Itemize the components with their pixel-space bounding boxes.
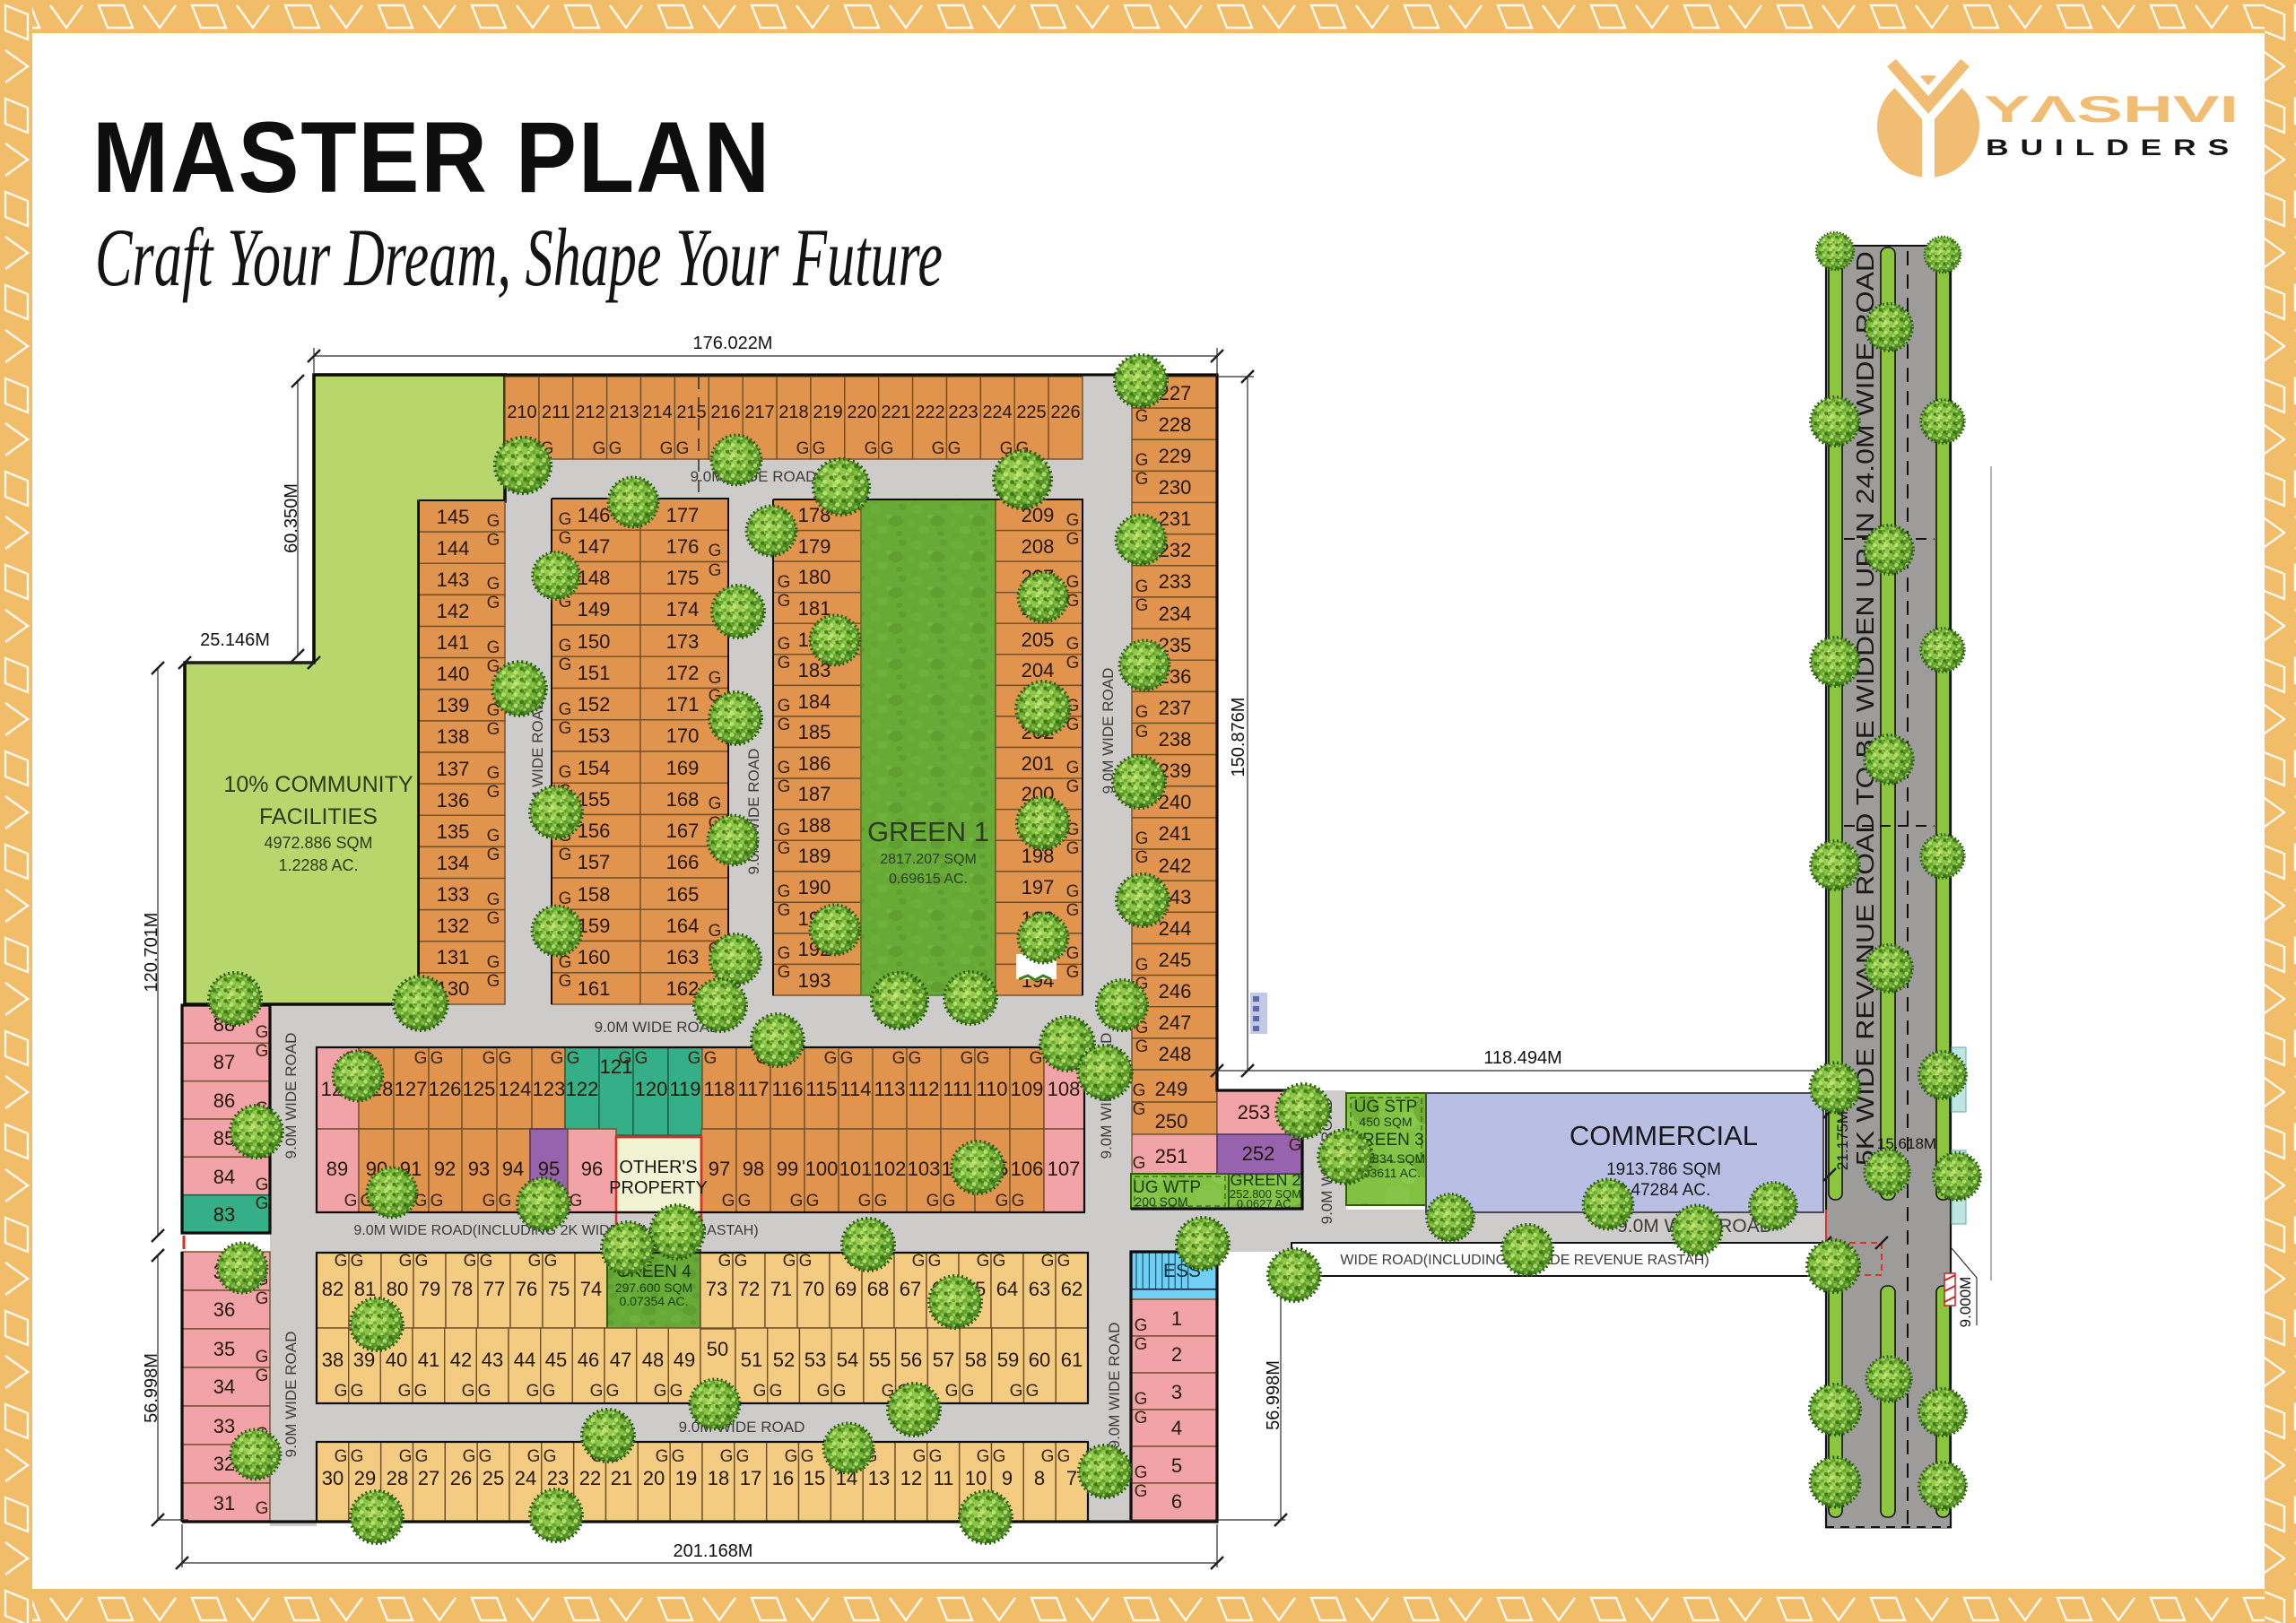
- svg-text:40: 40: [386, 1349, 407, 1371]
- svg-text:17: 17: [740, 1467, 761, 1489]
- svg-text:43: 43: [482, 1349, 503, 1371]
- svg-text:217: 217: [744, 403, 774, 422]
- svg-text:57: 57: [933, 1349, 954, 1371]
- svg-text:UG STP: UG STP: [1354, 1098, 1418, 1116]
- svg-text:200 SQM: 200 SQM: [1135, 1194, 1187, 1209]
- svg-text:98: 98: [743, 1158, 764, 1180]
- svg-text:139: 139: [437, 694, 470, 716]
- svg-text:G: G: [1041, 1447, 1055, 1466]
- svg-text:27: 27: [418, 1467, 439, 1489]
- svg-text:87: 87: [213, 1051, 235, 1073]
- svg-text:G: G: [256, 1367, 269, 1385]
- svg-text:112: 112: [908, 1078, 939, 1100]
- svg-text:58: 58: [965, 1349, 987, 1371]
- svg-text:G: G: [1135, 1335, 1148, 1354]
- svg-text:47: 47: [610, 1349, 631, 1371]
- svg-text:G: G: [785, 1447, 798, 1466]
- svg-text:181: 181: [798, 597, 831, 620]
- svg-text:G: G: [881, 439, 894, 458]
- svg-text:126: 126: [429, 1078, 462, 1100]
- svg-text:G: G: [660, 439, 674, 458]
- svg-text:41: 41: [418, 1349, 439, 1371]
- svg-text:G: G: [606, 1382, 620, 1401]
- svg-text:G: G: [1133, 1081, 1146, 1100]
- svg-text:131: 131: [437, 946, 470, 968]
- svg-text:108: 108: [1048, 1078, 1081, 1100]
- svg-text:221: 221: [881, 403, 910, 422]
- svg-text:G: G: [1066, 882, 1080, 901]
- svg-text:G: G: [256, 1289, 269, 1308]
- svg-text:G: G: [430, 1049, 444, 1068]
- svg-text:174: 174: [666, 598, 700, 621]
- svg-text:G: G: [796, 439, 810, 458]
- svg-text:109: 109: [1011, 1078, 1044, 1100]
- svg-text:G: G: [1135, 723, 1149, 742]
- svg-text:252: 252: [1242, 1142, 1275, 1165]
- svg-text:G: G: [1066, 901, 1080, 920]
- svg-text:G: G: [1012, 1192, 1025, 1211]
- svg-text:141: 141: [437, 631, 470, 654]
- svg-text:G: G: [778, 882, 791, 901]
- svg-text:G: G: [479, 1447, 492, 1466]
- svg-text:G: G: [961, 1049, 974, 1068]
- svg-text:167: 167: [666, 820, 700, 842]
- svg-text:169: 169: [666, 757, 700, 779]
- svg-text:G: G: [1135, 451, 1149, 470]
- svg-text:97: 97: [709, 1158, 730, 1180]
- svg-text:134: 134: [437, 852, 470, 874]
- svg-text:COMMERCIAL: COMMERCIAL: [1570, 1120, 1758, 1151]
- svg-text:G: G: [670, 1382, 683, 1401]
- svg-text:G: G: [778, 697, 791, 716]
- svg-text:MASTER PLAN: MASTER PLAN: [92, 101, 771, 213]
- svg-text:G: G: [778, 839, 791, 858]
- svg-text:62: 62: [1061, 1278, 1083, 1300]
- svg-text:G: G: [1135, 1316, 1148, 1335]
- svg-text:G: G: [487, 575, 500, 594]
- svg-text:G: G: [483, 1192, 496, 1211]
- svg-text:G: G: [1135, 703, 1149, 722]
- svg-text:2: 2: [1171, 1343, 1182, 1366]
- svg-text:64: 64: [996, 1278, 1018, 1300]
- svg-text:80: 80: [387, 1278, 408, 1300]
- svg-text:PROPERTY: PROPERTY: [609, 1178, 708, 1198]
- svg-text:146: 146: [578, 504, 611, 526]
- svg-text:75: 75: [548, 1278, 570, 1300]
- svg-text:G: G: [926, 1192, 940, 1211]
- svg-text:30: 30: [322, 1467, 344, 1489]
- svg-text:166: 166: [666, 851, 700, 873]
- svg-text:150.876M: 150.876M: [1229, 698, 1248, 777]
- svg-text:G: G: [709, 542, 722, 560]
- svg-text:G: G: [1030, 1049, 1043, 1068]
- svg-text:117: 117: [737, 1078, 769, 1100]
- svg-text:G: G: [912, 1252, 926, 1271]
- svg-text:190: 190: [798, 876, 831, 898]
- svg-text:G: G: [770, 1382, 783, 1401]
- svg-text:G: G: [858, 1192, 872, 1211]
- svg-text:G: G: [840, 1049, 854, 1068]
- svg-text:55: 55: [869, 1349, 891, 1371]
- svg-text:218: 218: [778, 403, 808, 422]
- svg-text:G: G: [1135, 848, 1149, 867]
- svg-text:249: 249: [1155, 1078, 1188, 1100]
- svg-text:G: G: [704, 1049, 717, 1068]
- svg-text:157: 157: [578, 851, 611, 873]
- svg-text:G: G: [1041, 1252, 1055, 1271]
- svg-text:56.998M: 56.998M: [1264, 1360, 1283, 1430]
- svg-text:52: 52: [773, 1349, 795, 1371]
- svg-text:59: 59: [997, 1349, 1019, 1371]
- svg-text:7: 7: [1066, 1467, 1077, 1489]
- svg-text:G: G: [559, 529, 572, 548]
- svg-text:G: G: [799, 1252, 813, 1271]
- svg-text:G: G: [1057, 1252, 1071, 1271]
- svg-text:224: 224: [982, 403, 1012, 422]
- svg-text:G: G: [1010, 1382, 1023, 1401]
- svg-text:93: 93: [468, 1158, 490, 1180]
- svg-text:5K WIDE REVANUE ROAD TO BE WID: 5K WIDE REVANUE ROAD TO BE WIDDEN UP IN …: [1851, 251, 1879, 1166]
- svg-text:G: G: [738, 1192, 752, 1211]
- svg-text:71: 71: [770, 1278, 792, 1300]
- svg-text:G: G: [778, 901, 791, 920]
- svg-text:G: G: [932, 439, 945, 458]
- svg-text:78: 78: [451, 1278, 473, 1300]
- svg-text:170: 170: [666, 725, 700, 747]
- svg-text:22: 22: [579, 1467, 601, 1489]
- svg-text:33: 33: [213, 1415, 235, 1437]
- svg-text:72: 72: [738, 1278, 760, 1300]
- svg-text:21.175M: 21.175M: [1834, 1111, 1851, 1170]
- svg-text:G: G: [487, 783, 500, 802]
- svg-text:G: G: [778, 777, 791, 796]
- svg-text:G: G: [806, 1192, 820, 1211]
- svg-text:212: 212: [575, 403, 604, 422]
- svg-text:158: 158: [578, 883, 611, 906]
- svg-text:216: 216: [710, 403, 740, 422]
- svg-text:G: G: [945, 1382, 959, 1401]
- svg-text:84: 84: [213, 1166, 235, 1188]
- svg-text:G: G: [414, 1382, 428, 1401]
- svg-text:136: 136: [437, 789, 470, 811]
- svg-text:0.07354 AC.: 0.07354 AC.: [619, 1294, 688, 1308]
- svg-text:230: 230: [1159, 476, 1192, 499]
- svg-text:110: 110: [976, 1078, 1007, 1100]
- svg-text:204: 204: [1022, 659, 1055, 681]
- svg-text:36: 36: [213, 1298, 235, 1321]
- svg-text:159: 159: [578, 915, 611, 937]
- svg-text:G: G: [778, 759, 791, 777]
- svg-text:173: 173: [666, 630, 700, 653]
- svg-text:99: 99: [777, 1158, 798, 1180]
- svg-text:18: 18: [708, 1467, 729, 1489]
- svg-text:G: G: [977, 1252, 990, 1271]
- svg-text:135: 135: [437, 820, 470, 843]
- svg-text:176.022M: 176.022M: [693, 334, 773, 353]
- svg-text:151: 151: [578, 662, 611, 684]
- svg-text:YΛSHVI: YΛSHVI: [1984, 88, 2239, 130]
- svg-text:251: 251: [1155, 1145, 1188, 1167]
- svg-text:G: G: [559, 510, 572, 529]
- svg-text:24: 24: [515, 1467, 536, 1489]
- svg-text:G: G: [865, 439, 878, 458]
- svg-text:G: G: [1066, 759, 1080, 777]
- svg-text:205: 205: [1022, 629, 1055, 651]
- svg-text:107: 107: [1048, 1158, 1081, 1180]
- svg-text:111: 111: [943, 1078, 972, 1100]
- svg-text:G: G: [778, 944, 791, 963]
- svg-text:163: 163: [666, 946, 700, 968]
- svg-text:G: G: [688, 1049, 701, 1068]
- svg-text:9.000M: 9.000M: [1957, 1277, 1974, 1328]
- svg-text:G: G: [559, 719, 572, 738]
- svg-text:G: G: [948, 439, 961, 458]
- svg-text:153: 153: [578, 725, 611, 747]
- svg-text:G: G: [335, 1382, 348, 1401]
- svg-text:175: 175: [666, 567, 700, 589]
- svg-text:G: G: [351, 1447, 364, 1466]
- svg-text:G: G: [335, 1447, 348, 1466]
- svg-text:10% COMMUNITY: 10% COMMUNITY: [223, 772, 413, 797]
- svg-text:144: 144: [437, 537, 470, 560]
- svg-text:165: 165: [666, 883, 700, 906]
- svg-text:1.2288 AC.: 1.2288 AC.: [278, 856, 358, 874]
- svg-text:6: 6: [1171, 1490, 1182, 1513]
- svg-text:50: 50: [707, 1338, 728, 1360]
- svg-text:116: 116: [771, 1078, 803, 1100]
- svg-text:G: G: [961, 1382, 975, 1401]
- svg-text:OTHER'S: OTHER'S: [619, 1158, 697, 1177]
- svg-text:102: 102: [874, 1158, 907, 1180]
- svg-text:G: G: [1066, 573, 1080, 592]
- svg-text:180: 180: [798, 566, 831, 588]
- svg-text:103: 103: [908, 1158, 941, 1180]
- svg-text:G: G: [801, 1447, 814, 1466]
- svg-text:119: 119: [669, 1078, 700, 1100]
- svg-text:35: 35: [213, 1338, 235, 1360]
- svg-text:63: 63: [1029, 1278, 1050, 1300]
- svg-text:G: G: [736, 1447, 750, 1466]
- svg-text:G: G: [499, 1192, 512, 1211]
- svg-text:G: G: [778, 635, 791, 654]
- svg-text:96: 96: [581, 1158, 603, 1180]
- svg-text:92: 92: [434, 1158, 456, 1180]
- svg-text:100: 100: [805, 1158, 839, 1180]
- svg-text:56: 56: [900, 1349, 922, 1371]
- svg-text:253: 253: [1238, 1101, 1271, 1124]
- svg-text:G: G: [977, 1447, 990, 1466]
- svg-text:143: 143: [437, 568, 470, 591]
- svg-text:61: 61: [1061, 1349, 1083, 1371]
- svg-text:15: 15: [804, 1467, 825, 1489]
- svg-text:G: G: [1135, 956, 1149, 975]
- svg-text:179: 179: [798, 535, 831, 558]
- svg-text:115: 115: [805, 1078, 837, 1100]
- svg-text:G: G: [778, 654, 791, 673]
- svg-text:82: 82: [322, 1278, 344, 1300]
- svg-text:G: G: [1135, 1409, 1148, 1428]
- svg-text:81: 81: [354, 1278, 376, 1300]
- svg-text:46: 46: [578, 1349, 599, 1371]
- svg-text:228: 228: [1159, 413, 1192, 436]
- svg-text:177: 177: [666, 504, 700, 526]
- svg-text:231: 231: [1159, 508, 1192, 530]
- svg-text:122: 122: [566, 1078, 599, 1100]
- svg-text:G: G: [487, 638, 500, 657]
- svg-text:G: G: [1066, 777, 1080, 796]
- svg-text:G: G: [1066, 839, 1080, 858]
- svg-text:G: G: [487, 909, 500, 928]
- svg-text:G: G: [1066, 511, 1080, 530]
- svg-text:G: G: [778, 592, 791, 611]
- svg-text:G: G: [1066, 963, 1080, 982]
- svg-text:G: G: [559, 763, 572, 782]
- svg-text:G: G: [559, 655, 572, 674]
- svg-text:140: 140: [437, 663, 470, 685]
- svg-text:G: G: [993, 1447, 1006, 1466]
- svg-text:26: 26: [450, 1467, 472, 1489]
- svg-text:67: 67: [900, 1278, 921, 1300]
- svg-text:73: 73: [706, 1278, 727, 1300]
- svg-text:G: G: [487, 512, 500, 531]
- svg-text:G: G: [943, 1192, 956, 1211]
- svg-text:Craft Your Dream, Shape Your F: Craft Your Dream, Shape Your Future: [95, 212, 943, 303]
- svg-text:211: 211: [542, 403, 570, 422]
- svg-text:220: 220: [847, 403, 876, 422]
- svg-text:89: 89: [326, 1158, 348, 1180]
- svg-text:5: 5: [1171, 1454, 1182, 1477]
- svg-text:68: 68: [867, 1278, 889, 1300]
- svg-text:184: 184: [798, 690, 831, 713]
- svg-text:G: G: [351, 1252, 364, 1271]
- svg-text:G: G: [929, 1447, 943, 1466]
- svg-text:G: G: [462, 1382, 475, 1401]
- svg-text:G: G: [256, 1194, 269, 1213]
- svg-text:152: 152: [578, 693, 611, 716]
- svg-text:118.494M: 118.494M: [1483, 1048, 1561, 1068]
- svg-text:G: G: [993, 1252, 1006, 1271]
- svg-text:137: 137: [437, 758, 470, 780]
- svg-text:G: G: [1135, 407, 1149, 426]
- svg-text:74: 74: [580, 1278, 602, 1300]
- svg-text:12: 12: [900, 1467, 922, 1489]
- svg-text:G: G: [463, 1447, 476, 1466]
- svg-text:G: G: [590, 1382, 604, 1401]
- svg-text:39: 39: [353, 1349, 375, 1371]
- svg-text:142: 142: [437, 600, 470, 622]
- svg-text:G: G: [676, 439, 690, 458]
- svg-text:9.0M WIDE ROAD: 9.0M WIDE ROAD: [283, 1033, 300, 1159]
- svg-text:G: G: [824, 1049, 838, 1068]
- svg-text:G: G: [499, 1049, 512, 1068]
- svg-text:G: G: [874, 1192, 888, 1211]
- svg-text:54: 54: [837, 1349, 858, 1371]
- svg-text:132: 132: [437, 915, 470, 937]
- svg-text:53: 53: [804, 1349, 826, 1371]
- svg-text:G: G: [351, 1382, 364, 1401]
- svg-text:76: 76: [516, 1278, 537, 1300]
- svg-text:G: G: [1133, 1100, 1146, 1119]
- svg-text:186: 186: [798, 752, 831, 775]
- svg-text:G: G: [256, 1176, 269, 1194]
- svg-text:G: G: [913, 1447, 926, 1466]
- svg-text:172: 172: [666, 662, 700, 684]
- svg-text:G: G: [487, 827, 500, 846]
- svg-text:G: G: [344, 1192, 358, 1211]
- svg-text:154: 154: [578, 757, 611, 779]
- svg-text:G: G: [654, 1382, 667, 1401]
- svg-text:G: G: [996, 1192, 1009, 1211]
- svg-text:171: 171: [666, 693, 700, 716]
- svg-text:145: 145: [437, 506, 470, 528]
- svg-text:120: 120: [635, 1078, 668, 1100]
- svg-text:147: 147: [578, 535, 611, 558]
- svg-text:G: G: [672, 1447, 685, 1466]
- svg-text:248: 248: [1159, 1043, 1192, 1065]
- svg-text:G: G: [487, 531, 500, 550]
- svg-text:G: G: [656, 1447, 669, 1466]
- svg-text:3: 3: [1171, 1381, 1182, 1403]
- svg-text:246: 246: [1159, 980, 1192, 1002]
- svg-text:G: G: [487, 890, 500, 909]
- svg-text:70: 70: [803, 1278, 824, 1300]
- svg-text:G: G: [256, 1499, 269, 1518]
- svg-text:G: G: [709, 669, 722, 688]
- svg-text:G: G: [1135, 1482, 1148, 1501]
- svg-text:G: G: [1135, 470, 1149, 489]
- svg-text:G: G: [909, 1049, 922, 1068]
- svg-text:G: G: [1135, 829, 1149, 848]
- svg-text:G: G: [487, 764, 500, 783]
- svg-text:G: G: [559, 846, 572, 864]
- svg-text:240: 240: [1159, 791, 1192, 813]
- svg-text:G: G: [833, 1382, 847, 1401]
- svg-text:222: 222: [915, 403, 944, 422]
- svg-text:G: G: [1133, 1154, 1146, 1173]
- svg-text:113: 113: [874, 1078, 905, 1100]
- svg-text:233: 233: [1159, 570, 1192, 593]
- svg-text:241: 241: [1159, 822, 1192, 845]
- svg-text:34: 34: [213, 1376, 235, 1398]
- svg-text:G: G: [735, 1252, 748, 1271]
- svg-text:188: 188: [798, 814, 831, 837]
- svg-text:G: G: [1135, 1037, 1149, 1056]
- svg-text:G: G: [399, 1252, 413, 1271]
- svg-text:23: 23: [547, 1467, 569, 1489]
- svg-text:45: 45: [545, 1349, 567, 1371]
- svg-text:G: G: [593, 439, 606, 458]
- svg-text:G: G: [487, 720, 500, 739]
- svg-text:G: G: [415, 1447, 429, 1466]
- svg-text:G: G: [551, 1049, 564, 1068]
- svg-text:114: 114: [839, 1078, 871, 1100]
- svg-text:123: 123: [533, 1078, 566, 1100]
- svg-text:101: 101: [839, 1158, 873, 1180]
- svg-text:213: 213: [609, 403, 639, 422]
- svg-text:69: 69: [835, 1278, 857, 1300]
- svg-text:187: 187: [798, 783, 831, 805]
- svg-text:G: G: [480, 1252, 493, 1271]
- svg-text:G: G: [718, 1252, 732, 1271]
- svg-text:197: 197: [1022, 876, 1055, 898]
- svg-text:25: 25: [483, 1467, 504, 1489]
- svg-text:G: G: [567, 1049, 580, 1068]
- svg-text:G: G: [778, 716, 791, 734]
- svg-text:G: G: [778, 573, 791, 592]
- svg-text:160: 160: [578, 946, 611, 968]
- svg-text:9.0M WIDE ROAD: 9.0M WIDE ROAD: [283, 1332, 300, 1458]
- svg-text:168: 168: [666, 788, 700, 811]
